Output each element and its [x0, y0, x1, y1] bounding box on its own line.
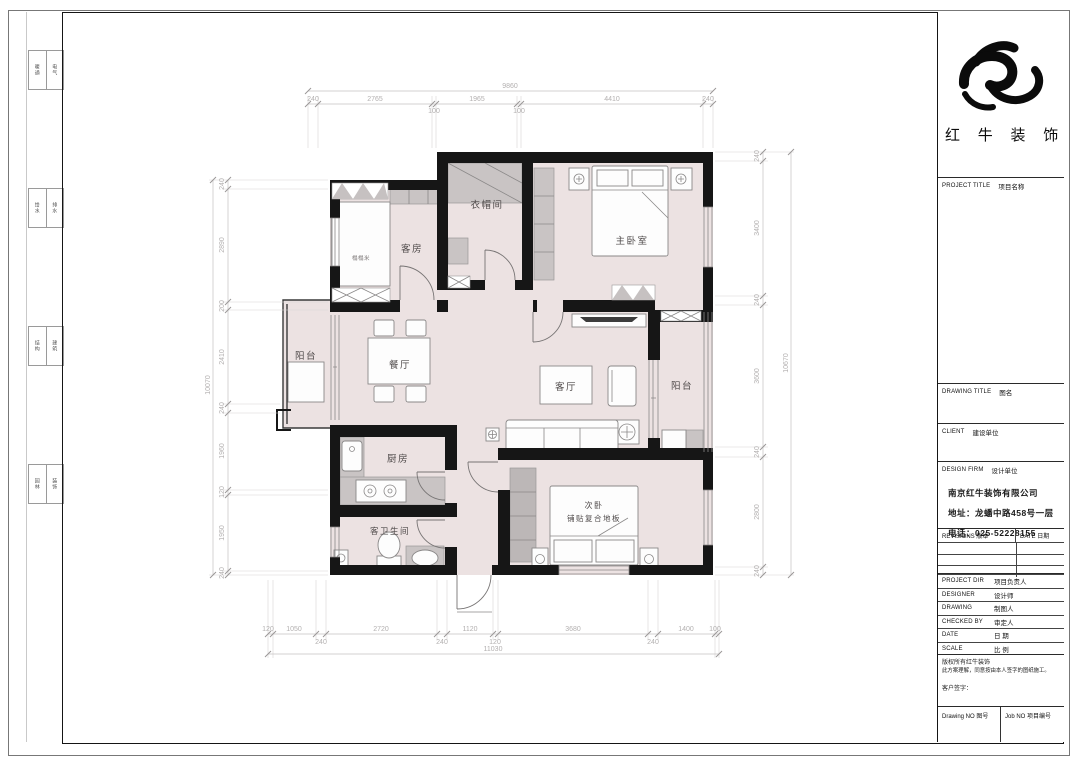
room-note-second: 铺贴复合地板: [567, 513, 621, 523]
sink: [342, 441, 362, 471]
signoff-cell: 园林 装饰: [28, 464, 64, 504]
section-client: CLIENT 建设单位: [938, 423, 1064, 461]
svg-text:2800: 2800: [754, 504, 761, 520]
svg-text:120: 120: [219, 486, 226, 498]
firm-name: 南京红牛装饰有限公司: [948, 487, 1058, 499]
staff-row: SCALE 比 例: [938, 642, 1064, 656]
svg-text:2720: 2720: [373, 626, 389, 633]
dim-bottom-total: 11030: [484, 646, 503, 653]
client-signature-label: 客户签字：: [942, 685, 1060, 693]
tv: [580, 317, 638, 322]
staff-row: CHECKED BY 审定人: [938, 615, 1064, 629]
room-label-balcony-left: 阳台: [295, 350, 317, 362]
signoff-label: 装饰: [47, 465, 64, 503]
revision-row: [938, 542, 1064, 554]
svg-text:1965: 1965: [469, 96, 485, 103]
section-staff: PROJECT DIR 项目负责人 DESIGNER 设计师 DRAWING 制…: [938, 573, 1064, 654]
svg-text:200: 200: [219, 300, 226, 312]
project-title-en: PROJECT TITLE: [942, 183, 990, 189]
design-firm-cn: 设计单位: [992, 465, 1018, 475]
svg-text:1050: 1050: [286, 626, 302, 633]
svg-text:100: 100: [709, 626, 721, 633]
svg-text:240: 240: [219, 178, 226, 190]
drawing-no-label: Drawing NO 图号: [938, 707, 1000, 742]
job-no-label: Job NO 项目编号: [1000, 707, 1064, 742]
room-label-bath: 客卫生间: [370, 526, 410, 536]
section-revisions: REVISIONS 版本 DATE 日期: [938, 528, 1064, 573]
svg-text:1960: 1960: [219, 443, 226, 459]
room-label-master: 主卧室: [615, 235, 648, 247]
svg-text:3400: 3400: [754, 220, 761, 236]
section-copyright: 版权所有红牛装饰 此方案理解，同意按由本人签字的图纸施工。 客户签字：: [938, 654, 1064, 706]
bull-logo: [938, 18, 1063, 128]
svg-text:240: 240: [307, 96, 319, 103]
svg-text:1120: 1120: [462, 626, 477, 633]
revisions-header: REVISIONS 版本: [938, 529, 1016, 542]
room-label-kitchen: 厨房: [387, 453, 409, 465]
svg-text:1400: 1400: [678, 626, 694, 633]
signoff-label: 排水: [47, 189, 64, 227]
svg-text:240: 240: [702, 96, 714, 103]
firm-address: 地址：龙蟠中路458号一层: [948, 507, 1058, 519]
svg-text:120: 120: [262, 626, 274, 633]
svg-text:2765: 2765: [367, 96, 383, 103]
staff-row: PROJECT DIR 项目负责人: [938, 574, 1064, 588]
svg-text:3600: 3600: [754, 368, 761, 384]
signoff-cell: 给水 排水: [28, 188, 64, 228]
room-label-second: 次卧: [585, 500, 604, 510]
svg-text:240: 240: [219, 402, 226, 414]
signoff-label: 给水: [29, 189, 47, 227]
floor-plan: 客房 榻榻米 衣帽间 主卧室 餐厅 客厅 阳台 阳台 厨房 客卫生间 次卧 铺贴…: [200, 40, 820, 680]
svg-text:2410: 2410: [219, 349, 226, 365]
section-design-firm: DESIGN FIRM 设计单位 南京红牛装饰有限公司 地址：龙蟠中路458号一…: [938, 461, 1064, 528]
design-firm-en: DESIGN FIRM: [942, 467, 984, 473]
signoff-label: 暖通: [29, 51, 47, 89]
project-title-cn: 项目名称: [998, 181, 1024, 191]
svg-text:100: 100: [428, 108, 440, 115]
svg-text:100: 100: [513, 108, 525, 115]
svg-text:1950: 1950: [219, 525, 226, 541]
room-label-dining: 餐厅: [389, 359, 411, 371]
company-brand: 红 牛 装 饰: [938, 124, 1064, 145]
room-label-tatami: 榻榻米: [352, 254, 370, 262]
staff-row: DESIGNER 设计师: [938, 588, 1064, 602]
dim-left-total: 10070: [205, 375, 212, 395]
dim-right-total: 10670: [783, 353, 790, 373]
revisions-date-header: DATE 日期: [1016, 529, 1064, 542]
client-cn: 建设单位: [973, 427, 999, 437]
revision-row: [938, 554, 1064, 566]
svg-text:2890: 2890: [219, 237, 226, 253]
svg-text:240: 240: [647, 639, 659, 646]
svg-text:3680: 3680: [565, 626, 581, 633]
svg-text:240: 240: [315, 639, 327, 646]
tatami-bed: [332, 202, 390, 286]
svg-text:240: 240: [754, 294, 761, 306]
client-en: CLIENT: [942, 429, 965, 435]
stove: [356, 480, 406, 502]
section-project-title: PROJECT TITLE 项目名称: [938, 177, 1064, 383]
room-label-closet: 衣帽间: [470, 199, 503, 211]
copyright-line: 此方案理解，同意按由本人签字的图纸施工。: [942, 667, 1060, 675]
signoff-cell: 暖通 电气: [28, 50, 64, 90]
svg-text:240: 240: [754, 446, 761, 458]
svg-text:240: 240: [436, 639, 448, 646]
room-label-guest: 客房: [401, 243, 423, 255]
staff-row: DRAWING 制图人: [938, 601, 1064, 615]
washing-machine: [288, 362, 324, 402]
drawing-title-cn: 图名: [999, 387, 1012, 397]
svg-text:4410: 4410: [604, 96, 620, 103]
dim-top-total: 9860: [502, 83, 518, 90]
signoff-cell: 结构 建筑: [28, 326, 64, 366]
drawing-sheet: 暖通 电气 给水 排水 结构 建筑 园林 装饰: [0, 0, 1080, 764]
copyright-line: 版权所有红牛装饰: [942, 659, 1060, 667]
binding-strip-line: [26, 12, 27, 742]
section-drawing-no: Drawing NO 图号 Job NO 项目编号: [938, 706, 1064, 742]
section-drawing-title: DRAWING TITLE 图名: [938, 383, 1064, 423]
title-block: 红 牛 装 饰 PROJECT TITLE 项目名称 DRAWING TITLE…: [937, 12, 1064, 742]
svg-text:240: 240: [754, 150, 761, 162]
drawing-title-en: DRAWING TITLE: [942, 389, 991, 395]
signoff-label: 园林: [29, 465, 47, 503]
svg-text:120: 120: [489, 639, 501, 646]
signoff-label: 结构: [29, 327, 47, 365]
room-label-balcony-right: 阳台: [671, 380, 693, 392]
svg-text:240: 240: [754, 565, 761, 577]
signoff-label: 建筑: [47, 327, 64, 365]
room-label-living: 客厅: [555, 381, 577, 393]
staff-row: DATE 日 期: [938, 628, 1064, 642]
signoff-label: 电气: [47, 51, 64, 89]
basin: [412, 550, 438, 566]
svg-text:240: 240: [219, 567, 226, 579]
